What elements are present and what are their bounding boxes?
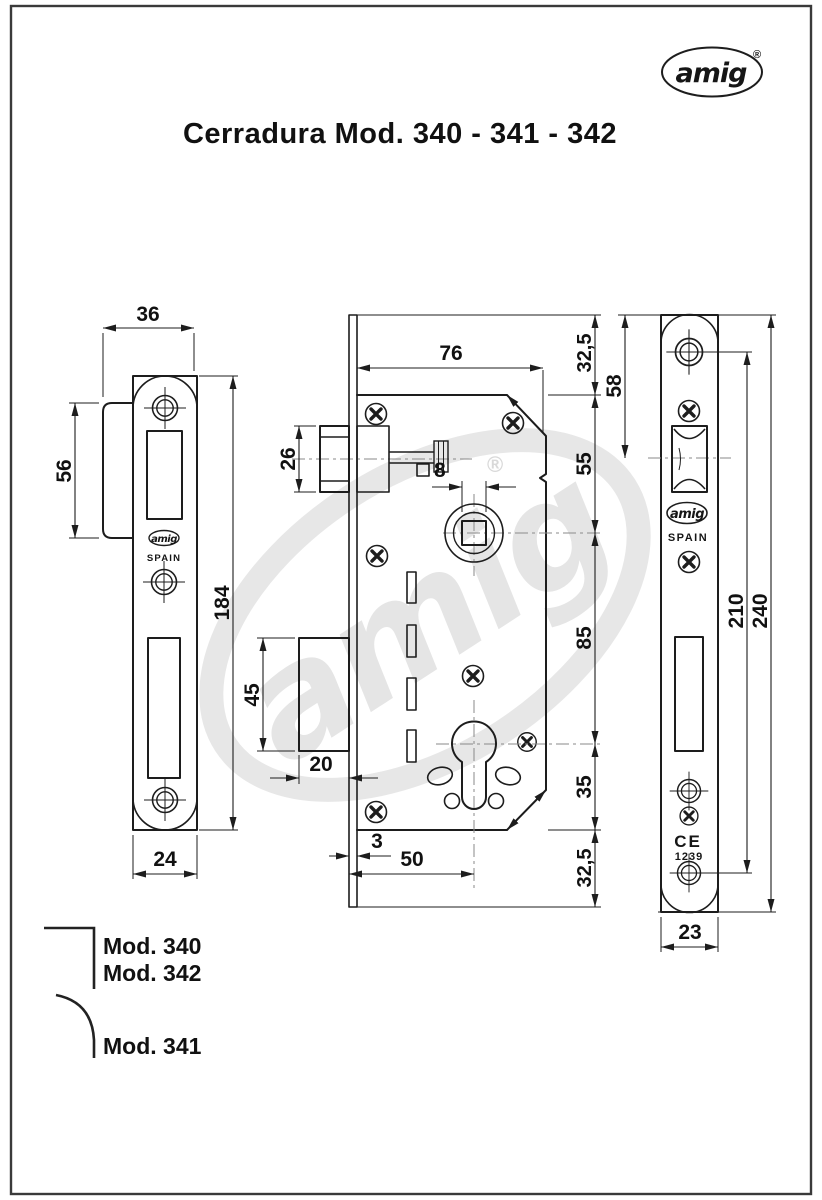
strike-brand-text: amig [151,534,177,545]
strike-deadbolt-opening [148,638,180,778]
dim-210: 210 [725,593,748,628]
faceplate-screw-2 [679,552,700,573]
dim-56: 56 [53,459,76,482]
dim-76: 76 [439,342,462,365]
dim-35: 35 [573,775,596,799]
dim-26: 26 [277,447,300,470]
faceplate-latch-opening [672,426,707,492]
ce-mark: CE [674,832,702,851]
dim-36: 36 [136,303,159,326]
logo-registered-icon: ® [753,49,761,61]
faceplate-round-bottom [661,884,718,913]
dim-8: 8 [434,459,446,482]
faceplate-brand-text: amig [670,507,704,522]
round-corner-symbol-icon [56,995,94,1058]
faceplate-hole-top [666,329,711,374]
body-screw-1 [366,404,387,425]
body-bottom-chamfer [507,790,546,830]
strike-plate-outline [133,376,197,830]
corner-style-legend: Mod. 340 Mod. 342 Mod. 341 [44,928,202,1059]
faceplate-outline [661,315,718,912]
legend-model-340: Mod. 340 [103,933,201,959]
dim-85: 85 [573,626,596,650]
legend-model-342: Mod. 342 [103,960,201,986]
strike-plate-view: amig SPAIN 36 56 184 24 [53,303,238,879]
faceplate-origin-text: SPAIN [668,532,708,544]
strike-screw-hole-bottom [144,779,186,821]
page-title: Cerradura Mod. 340 - 341 - 342 [183,118,617,150]
dim-55: 55 [573,452,596,476]
faceplate-deadbolt-opening [675,637,703,751]
brand-logo: amig ® [662,48,762,97]
drawing-canvas: amig ® amig ® Cerradura Mod. 340 - 341 -… [0,0,822,1200]
faceplate-screw-1 [679,401,700,422]
dim-23: 23 [678,921,701,944]
cylinder-oval-right [494,765,522,788]
dim-184: 184 [211,585,234,620]
legend-model-341: Mod. 341 [103,1033,202,1059]
dim-58: 58 [603,374,626,398]
body-screw-5 [518,733,536,751]
faceplate-view: amig SPAIN CE 1239 58 210 240 23 [603,315,776,953]
watermark-registered-icon: ® [487,452,503,477]
dim-20: 20 [309,753,332,776]
dim-32-5-bottom: 32,5 [574,849,596,888]
square-corner-symbol-icon [44,928,94,989]
faceplate-hole-lower [670,772,709,811]
watermark-text: amig [210,434,640,798]
cylinder-hole-right [489,794,504,809]
dim-24: 24 [153,848,177,871]
body-screw-6 [366,802,387,823]
dim-3: 3 [371,830,383,853]
dim-240: 240 [749,593,772,628]
logo-text: amig [676,58,748,89]
strike-latch-opening [147,431,182,519]
strike-screw-hole-middle [143,561,185,603]
strike-plate-lip [103,403,133,538]
technical-drawing-page: amig ® amig ® Cerradura Mod. 340 - 341 -… [0,0,822,1200]
cylinder-hole-left [445,794,460,809]
dim-50: 50 [400,848,423,871]
dim-32-5-top: 32,5 [574,334,596,373]
strike-screw-hole-top [144,387,186,429]
strike-origin-text: SPAIN [147,553,181,564]
dim-45: 45 [241,683,264,707]
body-slot-4 [407,730,416,762]
